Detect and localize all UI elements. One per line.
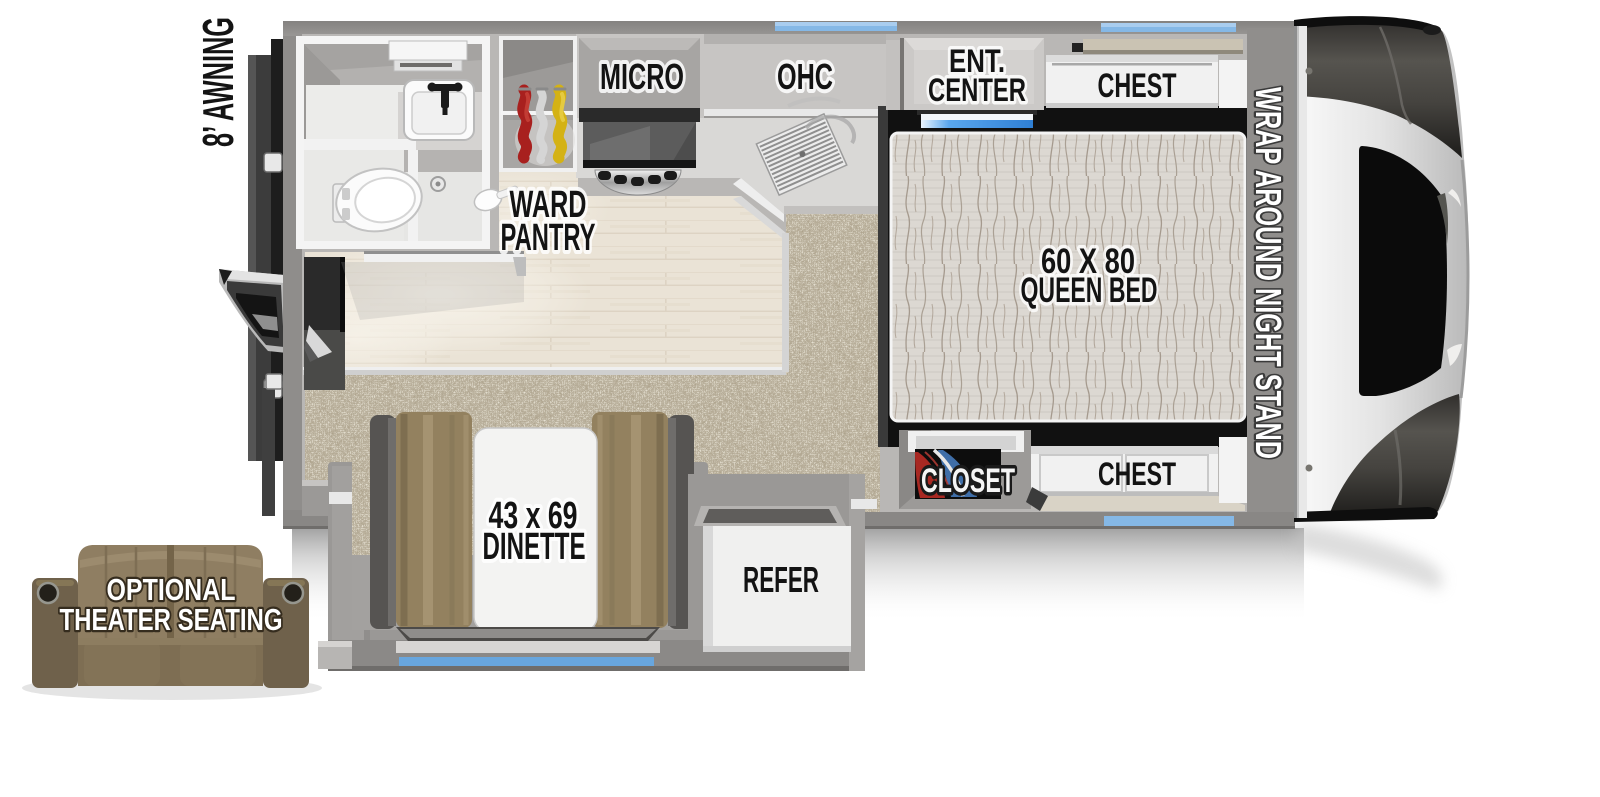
svg-text:CHEST: CHEST xyxy=(1098,456,1176,492)
svg-text:MICRO: MICRO xyxy=(600,56,684,97)
svg-text:8’ AWNING: 8’ AWNING xyxy=(194,17,243,147)
svg-text:CHEST: CHEST xyxy=(1098,67,1177,105)
svg-text:DINETTE: DINETTE xyxy=(483,526,586,568)
svg-text:WRAP AROUND NIGHT STAND: WRAP AROUND NIGHT STAND xyxy=(1248,87,1289,459)
svg-text:CENTER: CENTER xyxy=(928,72,1026,108)
svg-text:CLOSET: CLOSET xyxy=(921,462,1015,500)
svg-text:QUEEN BED: QUEEN BED xyxy=(1021,271,1158,310)
svg-text:THEATER SEATING: THEATER SEATING xyxy=(60,602,283,637)
svg-text:OHC: OHC xyxy=(777,56,833,97)
svg-text:REFER: REFER xyxy=(743,559,819,600)
svg-text:PANTRY: PANTRY xyxy=(501,217,596,259)
